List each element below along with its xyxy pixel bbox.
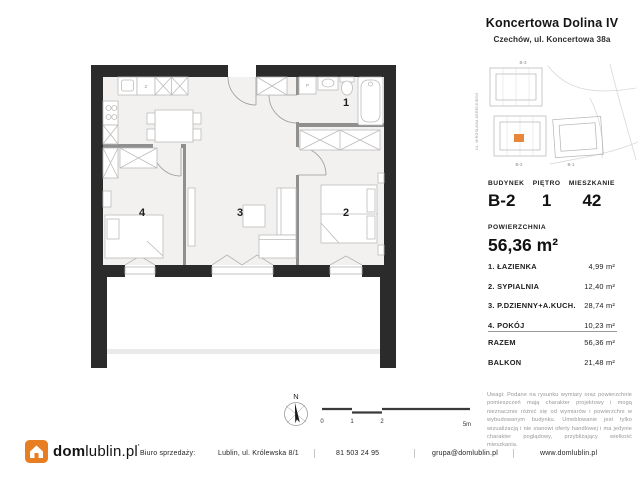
- stove: [103, 101, 118, 125]
- room-name: 2. SYPIALNIA: [488, 282, 539, 291]
- pietro-value: 1: [533, 191, 561, 211]
- coffee-table: [243, 205, 265, 227]
- hall-wardrobe: [257, 77, 287, 95]
- nightstand: [378, 245, 384, 255]
- room-row: 4. POKÓJ 10,23 m²: [488, 321, 615, 330]
- floor-plan: Z P 1 2 3 4: [85, 55, 396, 375]
- room-row: 3. P.DZIENNY+A.KUCH. 28,74 m²: [488, 301, 615, 310]
- room-number-2: 2: [343, 207, 349, 219]
- kitchen-tall-cabinet: [103, 125, 118, 144]
- scale-tick-1: 1: [350, 419, 354, 425]
- footer-divider: [414, 449, 415, 458]
- scale-bar: [322, 409, 470, 413]
- totals-block: RAZEM 56,36 m² BALKON 21,48 m²: [488, 338, 615, 377]
- domlublin-logo-icon[interactable]: [25, 440, 48, 463]
- bath-sink: [318, 77, 338, 90]
- site-street-label: UL. MIROSŁAWA DERECKIEGO: [475, 93, 479, 150]
- site-label-b2: B-2: [515, 162, 523, 167]
- total-area: 21,48 m²: [584, 358, 615, 367]
- room-name: 4. POKÓJ: [488, 321, 525, 330]
- summary-mieszkanie: MIESZKANIE 42: [569, 180, 615, 211]
- room-name: 1. ŁAZIENKA: [488, 262, 537, 271]
- disclaimer-text: Uwagi: Podane na rysunku wymiary oraz po…: [487, 391, 632, 450]
- footer-divider: [314, 449, 315, 458]
- room-area: 12,40 m²: [584, 282, 615, 291]
- total-name: BALKON: [488, 358, 521, 367]
- dishwasher-label: Z: [145, 84, 148, 89]
- total-row: BALKON 21,48 m²: [488, 358, 615, 367]
- site-buildings: [490, 68, 603, 158]
- compass-and-scale: N 0 1 2 5m: [270, 390, 480, 435]
- highlighted-unit: [514, 134, 524, 142]
- tv-unit: [188, 188, 195, 246]
- room-row: 2. SYPIALNIA 12,40 m²: [488, 282, 615, 291]
- total-area: 56,36 m²: [584, 338, 615, 347]
- email-link[interactable]: grupa@domlublin.pl: [432, 450, 498, 457]
- room-list: 1. ŁAZIENKA 4,99 m² 2. SYPIALNIA 12,40 m…: [488, 262, 615, 340]
- room4-wardrobe: [120, 148, 157, 168]
- room-area: 10,23 m²: [584, 321, 615, 330]
- site-label-b1: B-1: [567, 162, 575, 167]
- footer-divider: [513, 449, 514, 458]
- domlublin-logo-text[interactable]: domlublin.pl': [53, 443, 140, 460]
- page-title: Koncertowa Dolina IV: [470, 16, 634, 30]
- room-area: 4,99 m²: [589, 262, 615, 271]
- powierzchnia-label: POWIERZCHNIA: [488, 224, 615, 231]
- page-subtitle: Czechów, ul. Koncertowa 38a: [470, 35, 634, 44]
- pietro-label: PIĘTRO: [533, 180, 561, 187]
- budynek-value: B-2: [488, 191, 524, 211]
- single-bed: [105, 215, 163, 258]
- north-label: N: [293, 392, 298, 401]
- room4-shelf: [103, 191, 111, 207]
- kitchen-cabinet: [155, 77, 188, 95]
- mieszkanie-value: 42: [569, 191, 615, 211]
- washer-label: P: [306, 83, 309, 88]
- office-address: Lublin, ul. Królewska 8/1: [218, 450, 299, 457]
- room-number-1: 1: [343, 97, 349, 109]
- room-number-3: 3: [237, 207, 243, 219]
- room-row: 1. ŁAZIENKA 4,99 m²: [488, 262, 615, 271]
- dining-table: [155, 110, 193, 142]
- website-link[interactable]: www.domlublin.pl: [540, 450, 597, 457]
- area-block: POWIERZCHNIA 56,36 m²: [488, 224, 615, 256]
- nightstand: [378, 173, 384, 183]
- scale-tick-0: 0: [320, 419, 324, 425]
- powierzchnia-value: 56,36 m²: [488, 235, 615, 256]
- totals-divider: [488, 331, 617, 332]
- room4-cabinet: [103, 148, 118, 178]
- summary-panel: BUDYNEK B-2 PIĘTRO 1 MIESZKANIE 42: [488, 180, 615, 211]
- summary-budynek: BUDYNEK B-2: [488, 180, 524, 211]
- logo-text-bold: dom: [53, 443, 85, 460]
- office-label: Biuro sprzedaży:: [140, 450, 195, 457]
- total-name: RAZEM: [488, 338, 516, 347]
- site-map: B-3 B-2 B-1 UL. MIROSŁAWA DERECKIEGO: [470, 58, 640, 172]
- kitchen-sink: [118, 77, 137, 95]
- bathtub: [358, 77, 383, 125]
- balcony-edge: [107, 349, 380, 354]
- room-area: 28,74 m²: [584, 301, 615, 310]
- room-number-4: 4: [139, 207, 146, 219]
- north-arrow-icon: [285, 402, 308, 425]
- scale-tick-5m: 5m: [463, 422, 471, 428]
- room-name: 3. P.DZIENNY+A.KUCH.: [488, 301, 576, 310]
- header: Koncertowa Dolina IV Czechów, ul. Koncer…: [470, 16, 634, 44]
- total-row: RAZEM 56,36 m²: [488, 338, 615, 347]
- site-label-b3: B-3: [519, 60, 527, 65]
- scale-tick-2: 2: [380, 419, 384, 425]
- logo-text-rest: lublin.pl: [85, 443, 138, 460]
- mieszkanie-label: MIESZKANIE: [569, 180, 615, 187]
- phone-link[interactable]: 81 503 24 95: [336, 450, 379, 457]
- bedroom2-wardrobe: [300, 130, 380, 150]
- summary-pietro: PIĘTRO 1: [533, 180, 561, 211]
- budynek-label: BUDYNEK: [488, 180, 524, 187]
